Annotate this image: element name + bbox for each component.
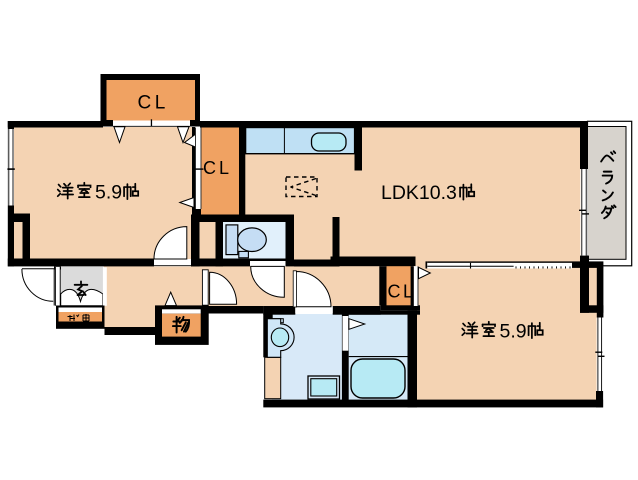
svg-text:CL: CL: [203, 158, 232, 178]
svg-text:CL: CL: [138, 93, 169, 114]
svg-text:CL: CL: [388, 282, 416, 302]
svg-text:LDK10.3: LDK10.3: [381, 182, 457, 204]
svg-text:5.9: 5.9: [500, 321, 527, 343]
svg-text:5.9: 5.9: [95, 182, 122, 204]
